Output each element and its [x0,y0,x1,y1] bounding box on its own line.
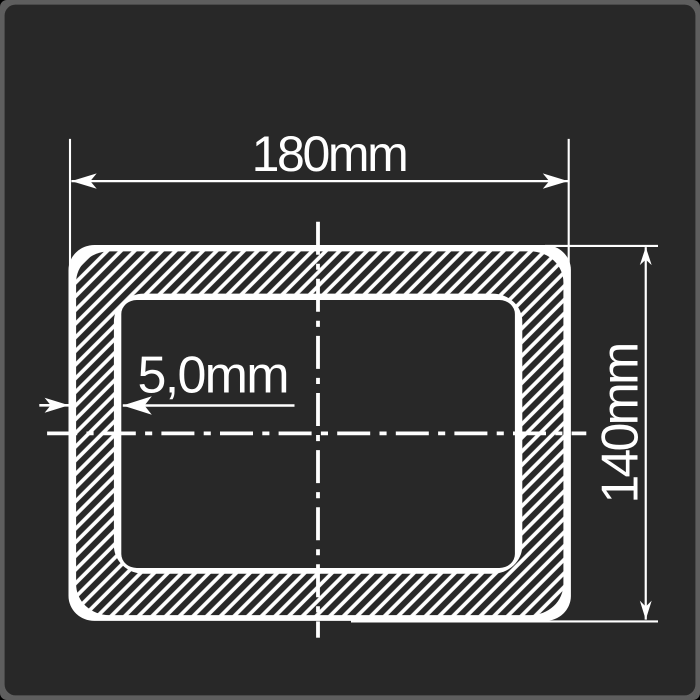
svg-text:5,0mm: 5,0mm [137,346,287,404]
svg-text:140mm: 140mm [592,345,650,504]
svg-text:180mm: 180mm [252,126,407,182]
